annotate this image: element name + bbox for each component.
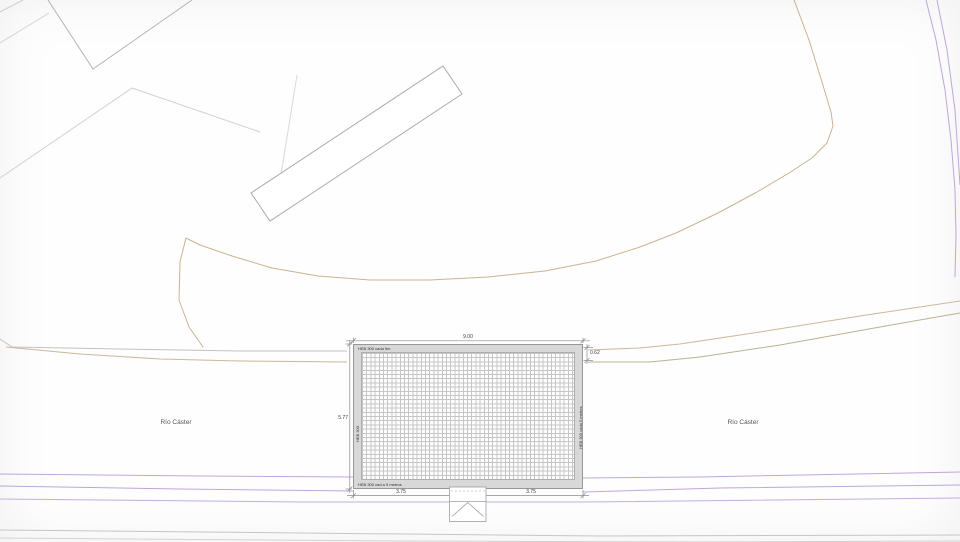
linework-svg — [0, 0, 960, 542]
stair-ramp-symbol — [450, 487, 487, 522]
dim-top-width: 9.00 — [453, 334, 483, 340]
dim-bottom-right-span: 3.75 — [518, 489, 544, 495]
dim-left-height: 5.77 — [330, 415, 348, 421]
building-footprint — [251, 66, 462, 221]
dim-bottom-left-span: 3.75 — [388, 489, 414, 495]
dimension-lines — [346, 338, 594, 499]
parcel-outlines — [0, 0, 297, 193]
river-label-right: Río Cáster — [708, 419, 778, 427]
site-plan-canvas: HEB 300 cada 5m HEB 300 cad a 5 metros H… — [0, 0, 960, 542]
terrain-contour-lines — [179, 0, 833, 347]
river-label-left: Río Cáster — [141, 419, 211, 427]
riverbank-lines — [0, 301, 960, 362]
dim-right-offset: 0.62 — [589, 350, 601, 356]
right-boundary-lines — [926, 0, 960, 277]
